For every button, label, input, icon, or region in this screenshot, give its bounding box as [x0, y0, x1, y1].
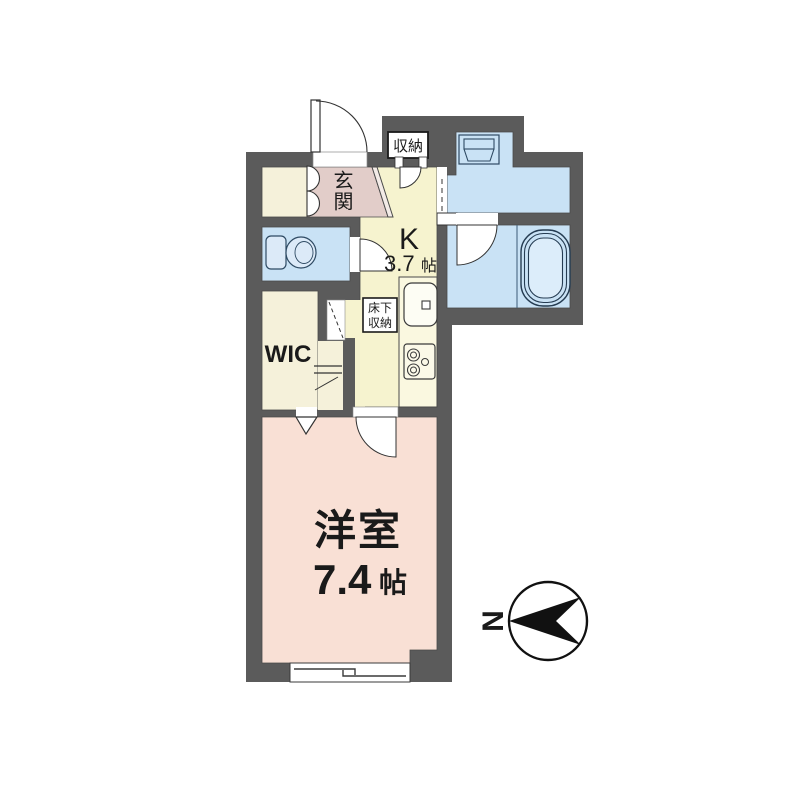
laundry-room-floor: [447, 132, 570, 213]
storage-label: 収納: [393, 138, 423, 155]
kitchen-faucet: [422, 301, 430, 309]
laundry-door-jamb: [437, 213, 457, 225]
bedroom-door-opening: [353, 407, 398, 417]
wic-kitchen-wall: [343, 338, 355, 412]
storage-door-jamb-left: [395, 157, 403, 168]
wic-opening: [327, 300, 345, 340]
underfloor-storage-line1: 床下: [368, 301, 392, 315]
bathroom-door-opening: [456, 213, 498, 225]
bedroom-label: 洋室: [314, 507, 402, 554]
bedroom-size: 7.4: [313, 556, 372, 603]
bathtub-inner: [529, 238, 563, 298]
underfloor-storage-line2: 収納: [368, 316, 392, 330]
wic-label: WIC: [265, 341, 312, 368]
kitchen-size: 3.7: [384, 251, 415, 276]
compass-north-label: N: [477, 610, 510, 632]
floor-plan-page: 収納 床下 収納 玄関 K 3.7 帖: [0, 0, 800, 800]
toilet-door-opening: [350, 237, 360, 272]
kitchen-size-unit: 帖: [421, 257, 437, 275]
front-door-swing-arc: [316, 101, 367, 152]
front-door-opening: [313, 152, 367, 167]
storage-door-jamb-right: [419, 157, 427, 168]
floor-plan-drawing: 収納 床下 収納 玄関 K 3.7 帖: [0, 0, 800, 800]
toilet-tank: [266, 236, 286, 269]
entrance-label: 玄関: [330, 170, 352, 212]
wic-folding-door-opening: [296, 407, 317, 417]
sliding-window: [290, 663, 410, 682]
bedroom-size-unit: 帖: [379, 567, 407, 598]
front-door-leaf: [311, 100, 320, 152]
shoe-closet-floor: [262, 167, 307, 217]
wic-floor-extension: [318, 341, 343, 410]
kitchen-sink: [404, 283, 437, 326]
